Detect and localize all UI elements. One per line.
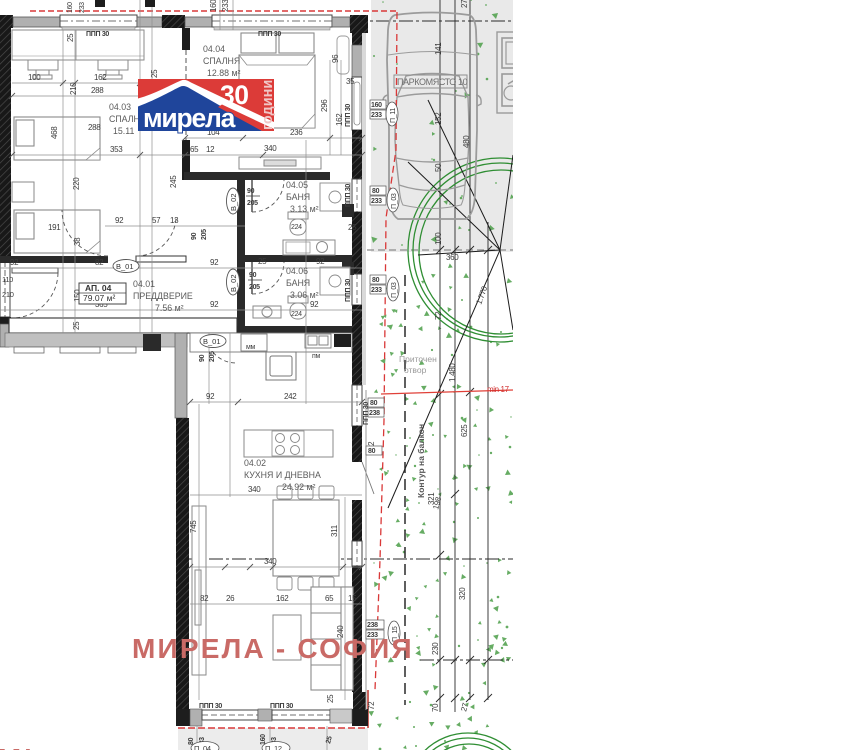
svg-text:100: 100 xyxy=(28,73,41,82)
svg-text:320: 320 xyxy=(458,587,467,600)
svg-text:191: 191 xyxy=(48,223,61,232)
svg-text:82: 82 xyxy=(200,594,209,603)
svg-text:1.480: 1.480 xyxy=(448,363,457,382)
svg-text:В_01: В_01 xyxy=(203,337,221,346)
svg-text:340: 340 xyxy=(264,144,277,153)
svg-text:92: 92 xyxy=(310,300,319,309)
svg-text:96: 96 xyxy=(331,54,340,63)
svg-text:ПРЕДДВЕРИЕ: ПРЕДДВЕРИЕ xyxy=(133,291,193,301)
svg-text:П_11: П_11 xyxy=(390,108,397,123)
svg-text:15: 15 xyxy=(348,594,357,603)
svg-text:230: 230 xyxy=(431,642,440,655)
svg-text:321: 321 xyxy=(427,492,436,505)
svg-text:353: 353 xyxy=(110,145,123,154)
svg-text:3.13 м²: 3.13 м² xyxy=(290,204,319,214)
svg-text:90: 90 xyxy=(191,232,198,240)
svg-text:27: 27 xyxy=(460,0,469,8)
svg-text:745: 745 xyxy=(189,520,198,533)
svg-text:В_02: В_02 xyxy=(229,274,238,292)
svg-text:04.01: 04.01 xyxy=(133,279,155,289)
svg-text:04.05: 04.05 xyxy=(286,180,308,190)
svg-text:години: години xyxy=(260,80,276,130)
svg-text:296: 296 xyxy=(320,99,329,112)
svg-text:13: 13 xyxy=(170,216,179,225)
svg-text:25: 25 xyxy=(66,33,75,42)
svg-text:160: 160 xyxy=(209,0,218,12)
svg-text:162: 162 xyxy=(276,594,289,603)
svg-text:236: 236 xyxy=(290,128,303,137)
svg-text:152: 152 xyxy=(434,112,443,125)
svg-text:70: 70 xyxy=(431,703,440,712)
svg-text:П_04: П_04 xyxy=(194,744,211,750)
svg-text:30: 30 xyxy=(220,80,248,110)
svg-text:205: 205 xyxy=(201,229,208,240)
svg-text:П_03: П_03 xyxy=(391,193,398,209)
svg-text:160: 160 xyxy=(371,102,382,109)
svg-text:92: 92 xyxy=(115,216,124,225)
svg-text:233: 233 xyxy=(371,287,382,294)
svg-text:ППП 30: ППП 30 xyxy=(345,184,352,207)
svg-text:80: 80 xyxy=(372,188,380,195)
svg-text:233: 233 xyxy=(79,2,86,13)
svg-text:233: 233 xyxy=(371,198,382,205)
svg-text:233: 233 xyxy=(221,0,230,12)
svg-text:отвор: отвор xyxy=(404,365,427,375)
svg-text:04.06: 04.06 xyxy=(286,266,308,276)
svg-text:26: 26 xyxy=(226,594,235,603)
svg-text:80: 80 xyxy=(368,448,376,455)
svg-text:90: 90 xyxy=(199,354,206,362)
svg-text:288: 288 xyxy=(91,86,104,95)
svg-text:205: 205 xyxy=(247,200,258,207)
svg-text:65: 65 xyxy=(190,145,199,154)
svg-text:72: 72 xyxy=(367,701,376,710)
svg-text:80: 80 xyxy=(370,400,378,407)
svg-text:80: 80 xyxy=(372,277,380,284)
svg-text:92: 92 xyxy=(10,258,19,267)
svg-text:24.92 м²: 24.92 м² xyxy=(282,482,316,492)
svg-text:57: 57 xyxy=(152,216,161,225)
svg-text:ППП 30: ППП 30 xyxy=(345,279,352,302)
svg-text:Приточен: Приточен xyxy=(399,354,437,364)
svg-text:340: 340 xyxy=(248,485,261,494)
svg-text:625: 625 xyxy=(460,424,469,437)
svg-text:162: 162 xyxy=(335,113,344,126)
svg-text:205: 205 xyxy=(249,284,260,291)
svg-text:82: 82 xyxy=(95,258,104,267)
svg-text:БАНЯ: БАНЯ xyxy=(286,192,310,202)
svg-text:БАНЯ: БАНЯ xyxy=(286,278,310,288)
svg-text:245: 245 xyxy=(169,175,178,188)
svg-text:340: 340 xyxy=(264,557,277,566)
svg-text:ППП 30: ППП 30 xyxy=(86,31,109,38)
svg-text:ППП 30: ППП 30 xyxy=(199,703,222,710)
svg-text:50: 50 xyxy=(434,163,443,172)
svg-text:04.04: 04.04 xyxy=(203,44,225,54)
svg-text:160: 160 xyxy=(67,2,74,13)
svg-text:238: 238 xyxy=(367,622,378,629)
svg-text:162: 162 xyxy=(94,73,107,82)
svg-text:65: 65 xyxy=(325,594,334,603)
svg-text:92: 92 xyxy=(210,300,219,309)
svg-text:мм: мм xyxy=(246,344,256,351)
svg-text:25: 25 xyxy=(150,69,159,78)
svg-text:ППП 30: ППП 30 xyxy=(345,104,352,127)
svg-text:205: 205 xyxy=(209,351,216,362)
svg-text:ППП 30: ППП 30 xyxy=(270,703,293,710)
svg-text:Контур на балкон: Контур на балкон xyxy=(416,424,426,498)
svg-text:В_02: В_02 xyxy=(229,193,238,211)
svg-text:35: 35 xyxy=(346,77,355,86)
svg-text:12: 12 xyxy=(206,145,215,154)
svg-text:ПАРКОМЯСТО 10: ПАРКОМЯСТО 10 xyxy=(397,77,468,87)
svg-text:141: 141 xyxy=(434,42,443,55)
svg-text:04.02: 04.02 xyxy=(244,458,266,468)
svg-text:25: 25 xyxy=(348,223,357,232)
svg-text:25: 25 xyxy=(258,257,267,266)
svg-text:12.88 м²: 12.88 м² xyxy=(207,68,241,78)
svg-text:311: 311 xyxy=(330,524,339,537)
svg-text:АП. 04: АП. 04 xyxy=(85,283,112,293)
svg-text:100: 100 xyxy=(434,232,443,245)
svg-text:min 17: min 17 xyxy=(487,385,510,394)
svg-text:04.03: 04.03 xyxy=(109,102,131,112)
svg-text:79.07 м²: 79.07 м² xyxy=(83,293,115,303)
svg-text:220: 220 xyxy=(72,177,81,190)
svg-text:90: 90 xyxy=(247,188,255,195)
svg-text:КУХНЯ И ДНЕВНА: КУХНЯ И ДНЕВНА xyxy=(244,470,321,480)
svg-text:210: 210 xyxy=(2,290,14,299)
svg-text:360: 360 xyxy=(446,253,459,262)
svg-text:210: 210 xyxy=(69,82,78,95)
svg-text:92: 92 xyxy=(206,392,215,401)
svg-text:224: 224 xyxy=(291,224,302,231)
svg-text:П_12: П_12 xyxy=(265,744,282,750)
svg-text:В_01: В_01 xyxy=(116,262,134,271)
svg-text:25: 25 xyxy=(72,321,81,330)
svg-text:233: 233 xyxy=(371,112,382,119)
svg-text:МИРЕЛА - СОФИЯ: МИРЕЛА - СОФИЯ xyxy=(132,633,414,664)
svg-text:15.11: 15.11 xyxy=(113,126,134,136)
svg-text:480: 480 xyxy=(462,135,471,148)
svg-text:пм: пм xyxy=(312,353,320,360)
svg-text:224: 224 xyxy=(291,311,302,318)
svg-text:3.06 м²: 3.06 м² xyxy=(290,290,319,300)
svg-text:242: 242 xyxy=(284,392,297,401)
svg-text:110: 110 xyxy=(2,275,13,284)
svg-text:288: 288 xyxy=(88,123,101,132)
svg-text:92: 92 xyxy=(210,258,219,267)
svg-text:468: 468 xyxy=(50,126,59,139)
svg-text:238: 238 xyxy=(369,410,380,417)
svg-text:25: 25 xyxy=(326,694,335,703)
svg-text:72: 72 xyxy=(434,311,443,320)
svg-text:ППП 30: ППП 30 xyxy=(258,31,281,38)
svg-text:7.56 м²: 7.56 м² xyxy=(155,303,184,313)
svg-text:92: 92 xyxy=(316,257,325,266)
svg-text:П_03: П_03 xyxy=(391,282,398,298)
svg-text:СПАЛНЯ: СПАЛНЯ xyxy=(203,56,240,66)
svg-text:90: 90 xyxy=(249,272,257,279)
